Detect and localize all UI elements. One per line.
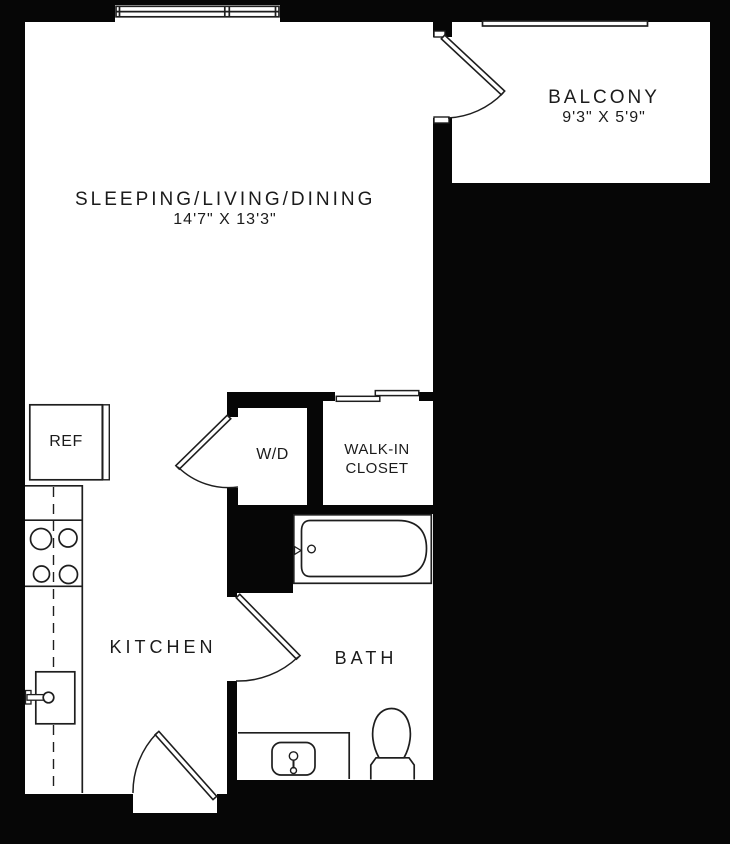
- kitchen-sink-icon: [26, 672, 75, 724]
- toilet-icon: [371, 709, 414, 780]
- vanity-sink-icon: [238, 733, 349, 779]
- closet-sliding-door-icon: [336, 391, 419, 402]
- window-icon: [116, 6, 279, 16]
- door-swing-arc: [448, 93, 503, 118]
- walk-in-closet-line1: WALK-IN: [327, 440, 427, 459]
- balcony-door-icon: [434, 31, 505, 123]
- fridge-label: REF: [29, 404, 103, 480]
- main-room-dimensions: 14'7" X 13'3": [75, 210, 375, 229]
- laundry-label: W/D: [246, 428, 299, 481]
- door-swing-arc: [133, 733, 157, 793]
- main-room-name: SLEEPING/LIVING/DINING: [75, 189, 375, 210]
- door-leaf: [155, 731, 217, 799]
- entry-door-icon: [133, 731, 217, 799]
- walk-in-closet-label: WALK-IN CLOSET: [327, 440, 427, 478]
- balcony-dimensions: 9'3" X 5'9": [504, 108, 704, 127]
- balcony-label: BALCONY 9'3" X 5'9": [504, 87, 704, 127]
- door-leaf: [441, 35, 504, 95]
- walk-in-closet-line2: CLOSET: [327, 459, 427, 478]
- door-leaf: [176, 415, 231, 469]
- laundry-door-icon: [176, 415, 238, 487]
- bathtub-icon: [294, 515, 432, 584]
- bath-label: BATH: [266, 648, 466, 668]
- kitchen-label: KITCHEN: [63, 637, 263, 657]
- balcony-name: BALCONY: [504, 87, 704, 108]
- main-room-label: SLEEPING/LIVING/DINING 14'7" X 13'3": [75, 189, 375, 229]
- door-swing-arc: [178, 467, 238, 488]
- floor-plan: SLEEPING/LIVING/DINING 14'7" X 13'3" BAL…: [0, 0, 730, 844]
- balcony-railing-icon: [483, 21, 648, 26]
